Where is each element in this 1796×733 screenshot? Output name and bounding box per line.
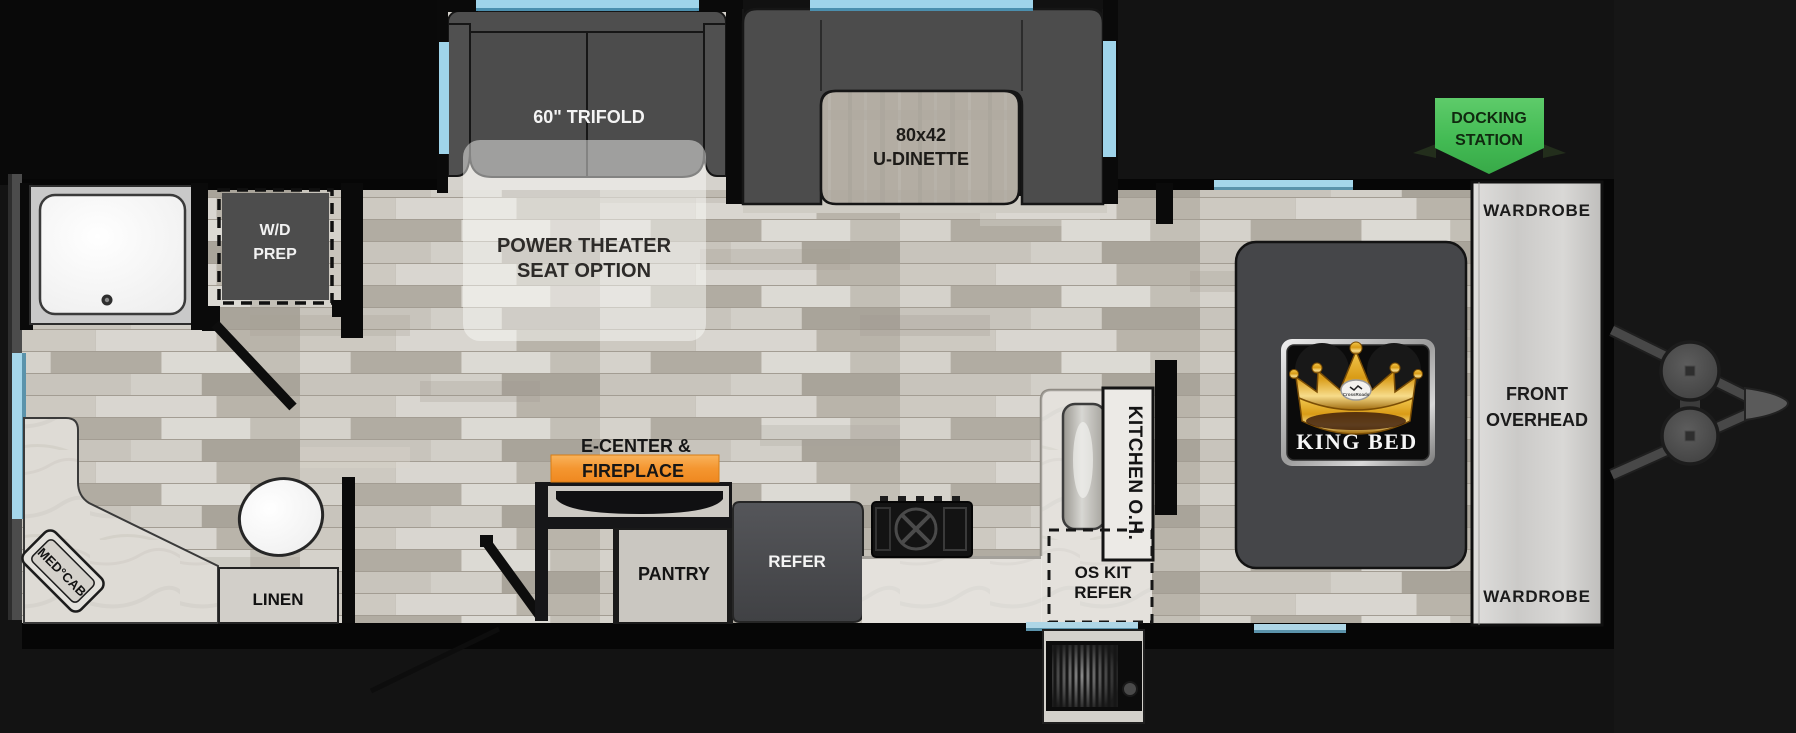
svg-text:DOCKING: DOCKING	[1451, 110, 1527, 127]
svg-text:REFER: REFER	[768, 552, 826, 571]
svg-text:OVERHEAD: OVERHEAD	[1486, 410, 1588, 430]
svg-text:U-DINETTE: U-DINETTE	[873, 149, 969, 169]
svg-text:LINEN: LINEN	[253, 590, 304, 609]
svg-text:PANTRY: PANTRY	[638, 564, 710, 584]
svg-text:REFER: REFER	[1074, 583, 1132, 602]
svg-text:80x42: 80x42	[896, 125, 946, 145]
svg-text:KING BED: KING BED	[1296, 429, 1417, 454]
svg-text:WARDROBE: WARDROBE	[1483, 201, 1590, 220]
svg-text:KITCHEN O.H.: KITCHEN O.H.	[1124, 406, 1145, 541]
svg-text:FRONT: FRONT	[1506, 384, 1568, 404]
svg-text:SEAT OPTION: SEAT OPTION	[517, 260, 651, 282]
svg-text:WARDROBE: WARDROBE	[1483, 587, 1590, 606]
svg-text:E-CENTER &: E-CENTER &	[581, 436, 691, 456]
svg-text:STATION: STATION	[1455, 132, 1523, 149]
svg-text:CrossRoads: CrossRoads	[1343, 392, 1370, 397]
svg-text:POWER THEATER: POWER THEATER	[497, 235, 672, 257]
svg-text:OS KIT: OS KIT	[1075, 563, 1132, 582]
svg-text:60" TRIFOLD: 60" TRIFOLD	[533, 107, 645, 127]
svg-text:PREP: PREP	[253, 246, 297, 263]
svg-text:FIREPLACE: FIREPLACE	[582, 461, 684, 481]
svg-text:W/D: W/D	[259, 222, 290, 239]
